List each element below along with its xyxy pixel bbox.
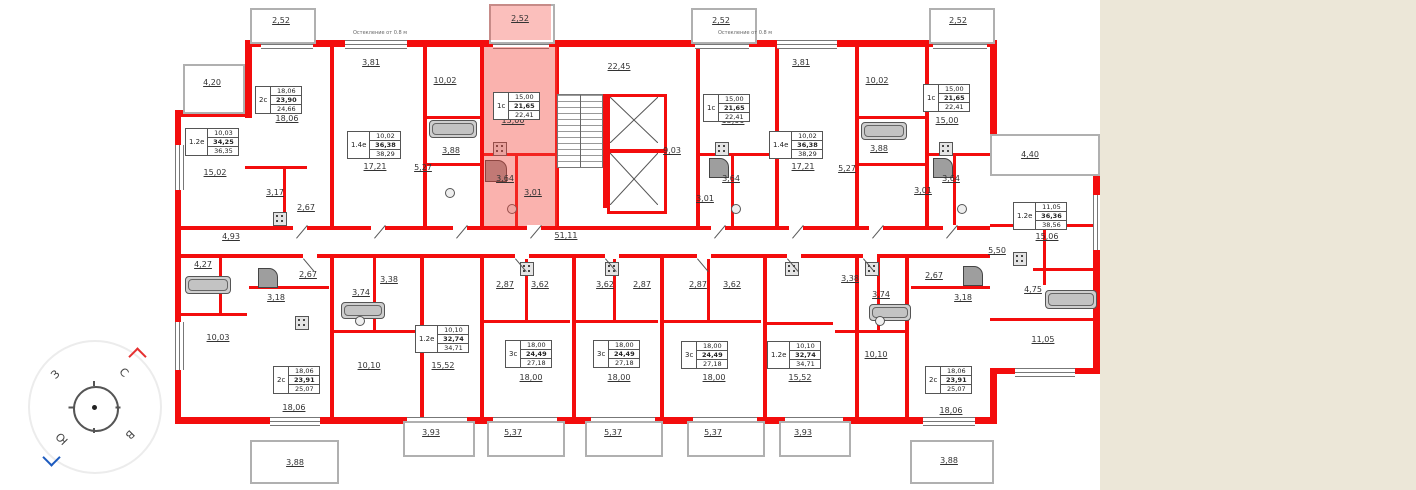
- room-area-label: 10,02: [866, 76, 889, 85]
- stairwell-area-label: 22,45: [608, 62, 631, 71]
- room-area-label: 18,06: [276, 114, 299, 123]
- room-area-label: 3,18: [954, 293, 972, 302]
- room-area-label: 17,21: [364, 162, 387, 171]
- wall: [1033, 268, 1095, 271]
- stove-icon: [939, 142, 953, 156]
- balcony: [403, 421, 475, 457]
- shower-icon: [258, 268, 278, 288]
- wall: [767, 322, 833, 325]
- room-area-label: 2,67: [925, 271, 943, 280]
- apartment-area-value: 18,00: [697, 342, 727, 351]
- room-area-label: 18,00: [703, 373, 726, 382]
- wall: [373, 258, 376, 330]
- apartment-label[interactable]: 1с15,0021,6522,41: [923, 84, 970, 112]
- apartment-area-value: 15,00: [509, 93, 539, 102]
- apartment-label[interactable]: 3с18,0024,4927,18: [681, 341, 728, 369]
- apartment-type: 3с: [594, 341, 609, 367]
- wall: [425, 163, 480, 166]
- wall: [480, 258, 484, 419]
- apartment-area-values: 10,1032,7434,71: [790, 342, 820, 368]
- room-area-label: 3,93: [794, 428, 812, 437]
- apartment-label[interactable]: 3с18,0024,4927,18: [593, 340, 640, 368]
- floor-plan: Остекление от 0.8 м Остекление от 0.8 м …: [175, 0, 1100, 490]
- room-area-label: 3,88: [286, 458, 304, 467]
- wall: [953, 156, 956, 226]
- wall: [763, 258, 767, 419]
- sink-icon: [355, 316, 365, 326]
- apartment-area-value: 34,71: [438, 344, 468, 352]
- apartment-type: 1с: [704, 95, 719, 121]
- wall: [925, 47, 929, 226]
- room-area-label: 3,38: [841, 274, 859, 283]
- apartment-type: 2с: [256, 87, 271, 113]
- room-area-label: 3,38: [380, 275, 398, 284]
- apartment-area-values: 15,0021,6522,41: [939, 85, 969, 111]
- apartment-type: 1.2е: [768, 342, 790, 368]
- room-area-label: 3,81: [362, 58, 380, 67]
- wall: [925, 153, 990, 156]
- room-area-label: 15,02: [204, 168, 227, 177]
- apartment-type: 1.2е: [186, 129, 208, 155]
- wall: [731, 156, 734, 226]
- glazing-note: Остекление от 0.8 м: [353, 30, 407, 36]
- apartment-area-values: 10,0334,2536,35: [208, 129, 238, 155]
- apartment-area-values: 18,0024,4927,18: [697, 342, 727, 368]
- room-area-label: 2,52: [511, 14, 529, 23]
- balcony: [250, 8, 316, 44]
- wall: [911, 286, 990, 289]
- stove-icon: [295, 316, 309, 330]
- room-area-label: 3,01: [914, 186, 932, 195]
- door-gap: [787, 253, 801, 259]
- wall: [576, 320, 658, 323]
- room-area-label: 3,64: [722, 174, 740, 183]
- room-area-label: 3,01: [524, 188, 542, 197]
- apartment-area-value: 18,06: [289, 367, 319, 376]
- room-area-label: 18,06: [940, 406, 963, 415]
- apartment-area-value: 38,29: [370, 150, 400, 158]
- elevator-x-icon: [610, 153, 658, 205]
- room-area-label: 3,74: [872, 290, 890, 299]
- balcony: [990, 134, 1100, 176]
- compass-tick: [93, 428, 95, 433]
- apartment-area-value: 18,00: [521, 341, 551, 350]
- apartment-type: 1с: [494, 93, 509, 119]
- room-area-label: 3,74: [352, 288, 370, 297]
- stove-icon: [715, 142, 729, 156]
- apartment-label[interactable]: 3с18,0024,4927,18: [505, 340, 552, 368]
- elevator-shaft: [607, 150, 667, 214]
- bathtub-icon: [185, 276, 231, 294]
- apartment-label[interactable]: 1.4е10,0236,3838,29: [769, 131, 823, 159]
- door-gap: [605, 253, 619, 259]
- compass-tick: [93, 381, 95, 386]
- room-area-label: 11,05: [1032, 335, 1055, 344]
- room-area-label: 2,52: [712, 16, 730, 25]
- apartment-area-value: 10,02: [792, 132, 822, 141]
- floor-plan-viewer: { "plan": { "glazing_note": "Остекление …: [0, 0, 1416, 490]
- room-area-label: 3,64: [942, 174, 960, 183]
- room-area-label: 2,52: [272, 16, 290, 25]
- room-area-label: 18,00: [608, 373, 631, 382]
- apartment-area-value: 18,06: [271, 87, 301, 96]
- room-area-label: 3,62: [723, 280, 741, 289]
- apartment-label[interactable]: 2с18,0623,9125,07: [273, 366, 320, 394]
- apartment-label-selected[interactable]: 1с15,0021,6522,41: [493, 92, 540, 120]
- room-area-label: 10,10: [865, 350, 888, 359]
- window: [1015, 368, 1075, 377]
- apartment-area-values: 11,0536,3638,56: [1036, 203, 1066, 229]
- door-gap: [697, 253, 711, 259]
- wall: [181, 313, 247, 316]
- room-area-label: 15,52: [432, 361, 455, 370]
- glazing-note: Остекление от 0.8 м: [718, 30, 772, 36]
- wall: [855, 116, 925, 119]
- apartment-area-value: 36,38: [792, 141, 822, 150]
- apartment-area-values: 18,0024,4927,18: [521, 341, 551, 367]
- apartment-area-values: 15,0021,6522,41: [509, 93, 539, 119]
- apartment-type: 1.4е: [348, 132, 370, 158]
- stove-icon: [273, 212, 287, 226]
- apartment-label[interactable]: 1.2е10,1032,7434,71: [415, 325, 469, 353]
- apartment-area-value: 22,41: [509, 111, 539, 119]
- shower-icon: [963, 266, 983, 286]
- wall: [572, 258, 576, 419]
- apartment-type: 3с: [682, 342, 697, 368]
- apartment-area-value: 24,49: [697, 351, 727, 360]
- door-gap: [515, 253, 529, 259]
- room-area-label: 5,37: [604, 428, 622, 437]
- room-area-label: 5,27: [838, 164, 856, 173]
- apartment-area-value: 23,90: [271, 96, 301, 105]
- wall: [330, 47, 334, 226]
- room-area-label: 18,06: [283, 403, 306, 412]
- room-area-label: 3,62: [531, 280, 549, 289]
- room-area-label: 3,88: [940, 456, 958, 465]
- wall: [990, 318, 1096, 321]
- wall: [245, 166, 307, 169]
- wall: [660, 258, 664, 419]
- room-area-label: 2,67: [297, 203, 315, 212]
- apartment-label[interactable]: 2с18,0623,9024,66: [255, 86, 302, 114]
- wall: [707, 258, 710, 320]
- apartment-label[interactable]: 1с15,0021,6522,41: [703, 94, 750, 122]
- apartment-area-value: 34,71: [790, 360, 820, 368]
- room-area-label: 18,00: [520, 373, 543, 382]
- room-area-label: 4,40: [1021, 150, 1039, 159]
- wall: [855, 163, 925, 166]
- room-area-label: 5,37: [504, 428, 522, 437]
- wall: [700, 153, 775, 156]
- window: [270, 417, 320, 426]
- apartment-area-value: 25,07: [941, 385, 971, 393]
- stove-icon: [520, 262, 534, 276]
- room-area-label: 15,00: [936, 116, 959, 125]
- apartment-area-value: 23,91: [289, 376, 319, 385]
- apartment-area-value: 10,03: [208, 129, 238, 138]
- bathtub-icon: [1045, 290, 1097, 309]
- compass-tick: [69, 407, 74, 409]
- apartment-area-values: 10,0236,3838,29: [792, 132, 822, 158]
- apartment-area-value: 15,00: [719, 95, 749, 104]
- compass-center-dot: [92, 405, 97, 410]
- apartment-type: 2с: [274, 367, 289, 393]
- room-area-label: 3,18: [267, 293, 285, 302]
- room-area-label: 3,81: [792, 58, 810, 67]
- balcony: [691, 8, 757, 44]
- balcony: [779, 421, 851, 457]
- room-area-label: 2,52: [949, 16, 967, 25]
- balcony: [585, 421, 663, 457]
- apartment-area-value: 21,65: [939, 94, 969, 103]
- room-area-label: 10,10: [358, 361, 381, 370]
- apartment-area-value: 11,05: [1036, 203, 1066, 212]
- room-area-label: 3,88: [870, 144, 888, 153]
- apartment-area-value: 23,91: [941, 376, 971, 385]
- door-gap: [303, 253, 317, 259]
- room-area-label: 3,62: [596, 280, 614, 289]
- room-area-label: 2,87: [633, 280, 651, 289]
- balcony: [183, 64, 245, 114]
- apartment-type: 3с: [506, 341, 521, 367]
- window: [923, 417, 975, 426]
- apartment-area-value: 27,18: [697, 360, 727, 368]
- apartment-type: 2с: [926, 367, 941, 393]
- apartment-area-values: 10,0236,3838,29: [370, 132, 400, 158]
- room-area-label: 17,21: [792, 162, 815, 171]
- sink-icon: [957, 204, 967, 214]
- apartment-type: 1.4е: [770, 132, 792, 158]
- compass-tick: [116, 407, 121, 409]
- sink-icon: [445, 188, 455, 198]
- wall: [484, 320, 570, 323]
- apartment-area-value: 21,65: [509, 102, 539, 111]
- apartment-area-value: 34,25: [208, 138, 238, 147]
- wall: [1093, 148, 1100, 374]
- apartment-area-values: 15,0021,6522,41: [719, 95, 749, 121]
- apartment-area-value: 24,66: [271, 105, 301, 113]
- compass: С В Ю З: [28, 340, 162, 474]
- apartment-area-values: 18,0623,9125,07: [289, 367, 319, 393]
- apartment-label[interactable]: 1.2е10,1032,7434,71: [767, 341, 821, 369]
- apartment-area-value: 36,36: [1036, 212, 1066, 221]
- room-area-label: 3,93: [422, 428, 440, 437]
- door-gap: [863, 253, 877, 259]
- apartment-area-value: 10,10: [438, 326, 468, 335]
- apartment-area-value: 21,65: [719, 104, 749, 113]
- balcony: [929, 8, 995, 44]
- room-area-label: 2,87: [689, 280, 707, 289]
- room-area-label: 4,75: [1024, 285, 1042, 294]
- sink-icon: [875, 316, 885, 326]
- wall: [330, 330, 418, 333]
- apartment-type: 1с: [924, 85, 939, 111]
- room-area-label: 2,87: [496, 280, 514, 289]
- balcony: [687, 421, 765, 457]
- wall: [423, 47, 427, 226]
- apartment-area-values: 18,0623,9024,66: [271, 87, 301, 113]
- apartment-label[interactable]: 1.2е10,0334,2536,35: [185, 128, 239, 156]
- wall: [425, 116, 480, 119]
- room-area-label: 5,37: [704, 428, 722, 437]
- room-area-label: 10,03: [207, 333, 230, 342]
- apartment-area-value: 27,18: [521, 359, 551, 367]
- room-area-label: 15,52: [789, 373, 812, 382]
- room-area-label: 5,27: [414, 163, 432, 172]
- room-area-label: 4,93: [222, 232, 240, 241]
- room-area-label: 3,88: [442, 146, 460, 155]
- wall: [330, 258, 334, 419]
- stove-icon: [1013, 252, 1027, 266]
- wall: [855, 47, 859, 226]
- map-panel[interactable]: P 1 Георгия Чернышева Георгия Чернышева …: [1100, 0, 1416, 490]
- room-area-label: 3,17: [266, 188, 284, 197]
- window: [175, 145, 184, 190]
- room-area-label: 3,01: [696, 194, 714, 203]
- room-area-label: 5,50: [988, 246, 1006, 255]
- apartment-area-value: 36,38: [370, 141, 400, 150]
- elevator-shaft: [607, 94, 667, 152]
- window: [777, 40, 837, 49]
- room-area-label: 4,27: [194, 260, 212, 269]
- apartment-label[interactable]: 1.4е10,0236,3838,29: [347, 131, 401, 159]
- apartment-area-value: 10,02: [370, 132, 400, 141]
- apartment-area-value: 38,29: [792, 150, 822, 158]
- wall: [990, 368, 997, 424]
- apartment-area-value: 24,49: [521, 350, 551, 359]
- wall: [835, 330, 905, 333]
- apartment-area-value: 22,41: [719, 113, 749, 121]
- sink-icon: [731, 204, 741, 214]
- staircase: [557, 94, 603, 168]
- stove-icon: [605, 262, 619, 276]
- wall: [905, 258, 909, 419]
- apartment-area-value: 27,18: [609, 359, 639, 367]
- apartment-label[interactable]: 1.2е11,0536,3638,56: [1013, 202, 1067, 230]
- bathtub-icon: [861, 122, 907, 140]
- bathtub-icon: [429, 120, 477, 138]
- apartment-area-value: 24,49: [609, 350, 639, 359]
- apartment-area-value: 18,00: [609, 341, 639, 350]
- apartment-area-value: 38,56: [1036, 221, 1066, 229]
- room-area-label: 4,20: [203, 78, 221, 87]
- corridor-area-label: 51,11: [555, 231, 578, 240]
- elevator-x-icon: [610, 97, 658, 143]
- apartment-type: 1.2е: [416, 326, 438, 352]
- apartment-type: 1.2е: [1014, 203, 1036, 229]
- window: [175, 322, 184, 370]
- selected-apartment-highlight[interactable]: [484, 47, 557, 226]
- wall: [664, 320, 761, 323]
- room-area-label: 10,02: [434, 76, 457, 85]
- balcony: [487, 421, 565, 457]
- apartment-area-value: 22,41: [939, 103, 969, 111]
- room-area-label: 3,64: [496, 174, 514, 183]
- apartment-area-values: 18,0623,9125,07: [941, 367, 971, 393]
- apartment-area-values: 10,1032,7434,71: [438, 326, 468, 352]
- apartment-area-value: 32,74: [790, 351, 820, 360]
- wall: [245, 40, 252, 118]
- apartment-label[interactable]: 2с18,0623,9125,07: [925, 366, 972, 394]
- apartment-area-value: 32,74: [438, 335, 468, 344]
- apartment-area-value: 10,10: [790, 342, 820, 351]
- apartment-area-value: 25,07: [289, 385, 319, 393]
- apartment-area-value: 36,35: [208, 147, 238, 155]
- apartment-area-value: 15,00: [939, 85, 969, 94]
- apartment-area-value: 18,06: [941, 367, 971, 376]
- window: [345, 40, 407, 49]
- apartment-area-values: 18,0024,4927,18: [609, 341, 639, 367]
- lobby-area-label: 9,03: [663, 146, 681, 155]
- room-area-label: 15,06: [1036, 232, 1059, 241]
